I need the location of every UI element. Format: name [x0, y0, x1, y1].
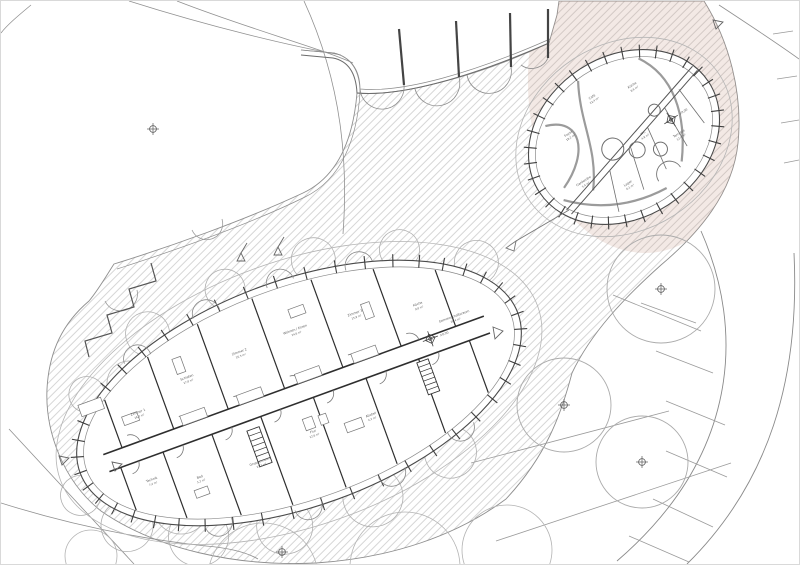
road-curve — [177, 1, 353, 63]
tree-crown — [65, 530, 117, 564]
road-curve — [1, 5, 31, 33]
parking-road-edge — [687, 253, 795, 564]
floor-plan-sheet: Zimmer 116,2 m²Schlafen17,8 m²Zimmer 216… — [0, 0, 800, 565]
site-plan-canvas: Zimmer 116,2 m²Schlafen17,8 m²Zimmer 216… — [1, 1, 799, 564]
